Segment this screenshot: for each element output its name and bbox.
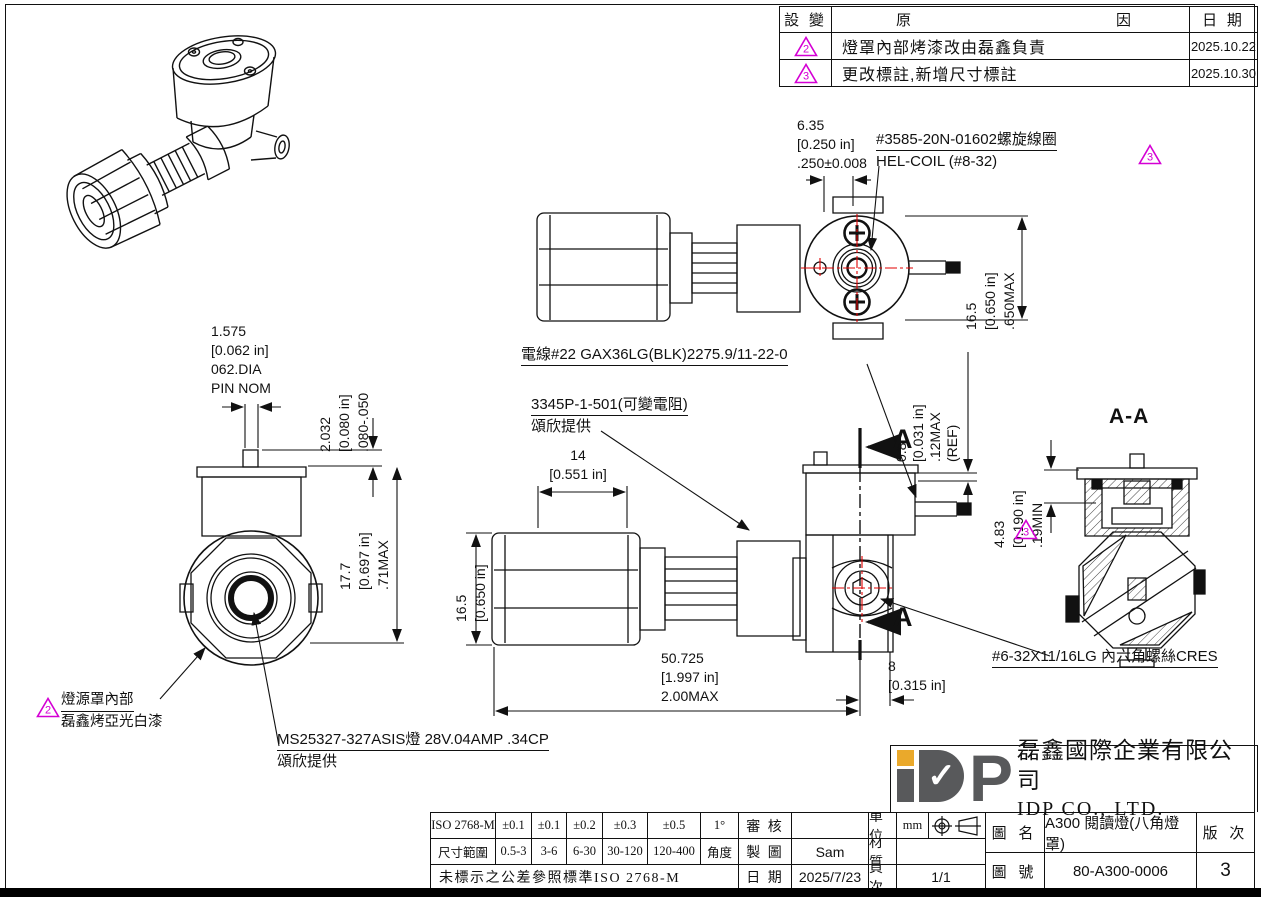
date-label: 日 期 [739,865,792,890]
tol-value: 1° [701,813,739,839]
tol-range-label: 尺寸範圍 [431,839,496,865]
check-icon: ✓ [927,756,956,796]
bulb-note: MS25327-327ASIS燈 28V.04AMP .34CP 頌欣提供 [277,729,549,772]
title-block: 圖 名 A300 閱讀燈(八角燈罩) 版 次 圖 號 80-A300-0006 … [985,812,1255,890]
front-view [180,450,322,665]
tol-value: ±0.2 [567,813,603,839]
drawing-sheet: 設 變 原 因 日 期 2 燈罩內部烤漆改由磊鑫負責 2025.10.22 3 … [0,0,1261,897]
revision-value: 3 [1197,853,1255,890]
dim-16.5-650max: 16.5 [0.650 in] .650MAX [962,272,1019,330]
dim-17.7: 17.7[0.697 in].71MAX [336,532,393,590]
revision-reason: 更改標註,新增尺寸標註 [832,60,1190,87]
tol-range: 30-120 [603,839,648,865]
revision-col-reason-left: 原 [896,9,911,30]
section-letter-top: A [893,424,913,455]
svg-text:2: 2 [802,43,808,55]
drawing-name-value: A300 閱讀燈(八角燈罩) [1045,813,1197,853]
dim-16.5-left: 16.5[0.650 in] [452,564,490,622]
logo-i-stem [897,769,914,802]
logo-letter-d-check-icon: ✓ [919,750,964,802]
tolerance-note: 未標示之公差參照標準ISO 2768-M [431,865,739,890]
revision-mark-3: 3 [780,60,832,87]
dim-6.35: 6.35[0.250 in].250±0.008 [797,116,867,173]
tol-range: 3-6 [532,839,567,865]
review-value [792,813,869,839]
tolerance-table: ISO 2768-M ±0.1 ±0.1 ±0.2 ±0.3 ±0.5 1° 審… [430,812,986,890]
date-value: 2025/7/23 [792,865,869,890]
section-letter-bottom: A [893,602,913,633]
tol-range: 角度 [701,839,739,865]
dim-50.725: 50.725[1.997 in]2.00MAX [661,649,719,706]
revision-col-change: 設 變 [780,7,832,33]
page-value: 1/1 [897,865,986,890]
isometric-view [55,29,291,258]
wire-note: 電線#22 GAX36LG(BLK)2275.9/11-22-0 [521,344,788,366]
idp-logo: ✓ P [891,751,1015,807]
revision-date: 2025.10.30 [1190,60,1258,87]
svg-text:3: 3 [1023,527,1029,539]
drawer-value: Sam [792,839,869,865]
drawing-number-value: 80-A300-0006 [1045,853,1197,890]
revision-table: 設 變 原 因 日 期 2 燈罩內部烤漆改由磊鑫負責 2025.10.22 3 … [779,6,1258,87]
tol-value: ±0.1 [496,813,532,839]
revision-label: 版 次 [1197,813,1255,853]
dim-2.032: 2.032[0.080 in].080-.050 [316,393,373,452]
company-name-cn: 磊鑫國際企業有限公司 [1017,736,1256,796]
tol-standard: ISO 2768-M [431,813,496,839]
unit-value: mm [897,813,929,839]
revision-col-reason-right: 因 [1116,9,1131,30]
revision-mark-2: 2 [780,33,832,60]
revision-triangle-icon: 3 [1138,144,1162,165]
revision-triangle-icon: 2 [36,697,60,718]
section-title: A-A [1109,405,1149,429]
revision-date: 2025.10.22 [1190,33,1258,60]
logo-letter-i-icon [897,750,914,802]
dim-14: 14[0.551 in] [528,446,628,484]
third-angle-projection-icon [929,813,986,839]
section-cut-line [860,428,890,660]
page-label: 頁 次 [869,865,897,890]
tol-value: ±0.5 [648,813,701,839]
tol-range: 120-400 [648,839,701,865]
revision-col-date: 日 期 [1190,7,1258,33]
revision-triangle-icon: 3 [1014,519,1038,540]
svg-text:2: 2 [45,705,51,717]
tol-value: ±0.1 [532,813,567,839]
material-label: 材 質 [869,839,897,865]
tol-range: 0.5-3 [496,839,532,865]
dim-8: 8[0.315 in] [888,657,946,695]
drawing-name-label: 圖 名 [985,813,1045,853]
company-names: 磊鑫國際企業有限公司 IDP CO., LTD. [1015,736,1256,822]
material-value [897,839,986,865]
shade-note: 燈源罩內部 磊鑫烤亞光白漆 [61,690,163,733]
tol-value: ±0.3 [603,813,648,839]
helcoil-note: #3585-20N-01602螺旋線圈 HEL-COIL (#8-32) [876,129,1057,172]
sheet-bottom-bar [0,888,1261,897]
revision-triangle-icon: 3 [794,63,818,84]
revision-triangle-icon: 2 [794,36,818,57]
svg-text:3: 3 [1147,152,1153,164]
logo-gold-dot [897,750,914,766]
revision-reason: 燈罩內部烤漆改由磊鑫負責 [832,33,1190,60]
svg-text:3: 3 [802,70,808,82]
section-view-aa [1066,454,1205,667]
resistor-note: 3345P-1-501(可變電阻) 頌欣提供 [531,394,688,437]
revision-col-reason: 原 因 [832,7,1190,33]
tol-range: 6-30 [567,839,603,865]
company-block: ✓ P 磊鑫國際企業有限公司 IDP CO., LTD. [890,745,1258,812]
logo-letter-p: P [969,754,1011,802]
unit-label: 單 位 [869,813,897,839]
drawing-number-label: 圖 號 [985,853,1045,890]
screw-note: #6-32X11/16LG 內六角螺絲CRES [992,646,1218,668]
dim-pin: 1.575[0.062 in] 062.DIAPIN NOM [211,322,271,398]
review-label: 審 核 [739,813,792,839]
drawer-label: 製 圖 [739,839,792,865]
